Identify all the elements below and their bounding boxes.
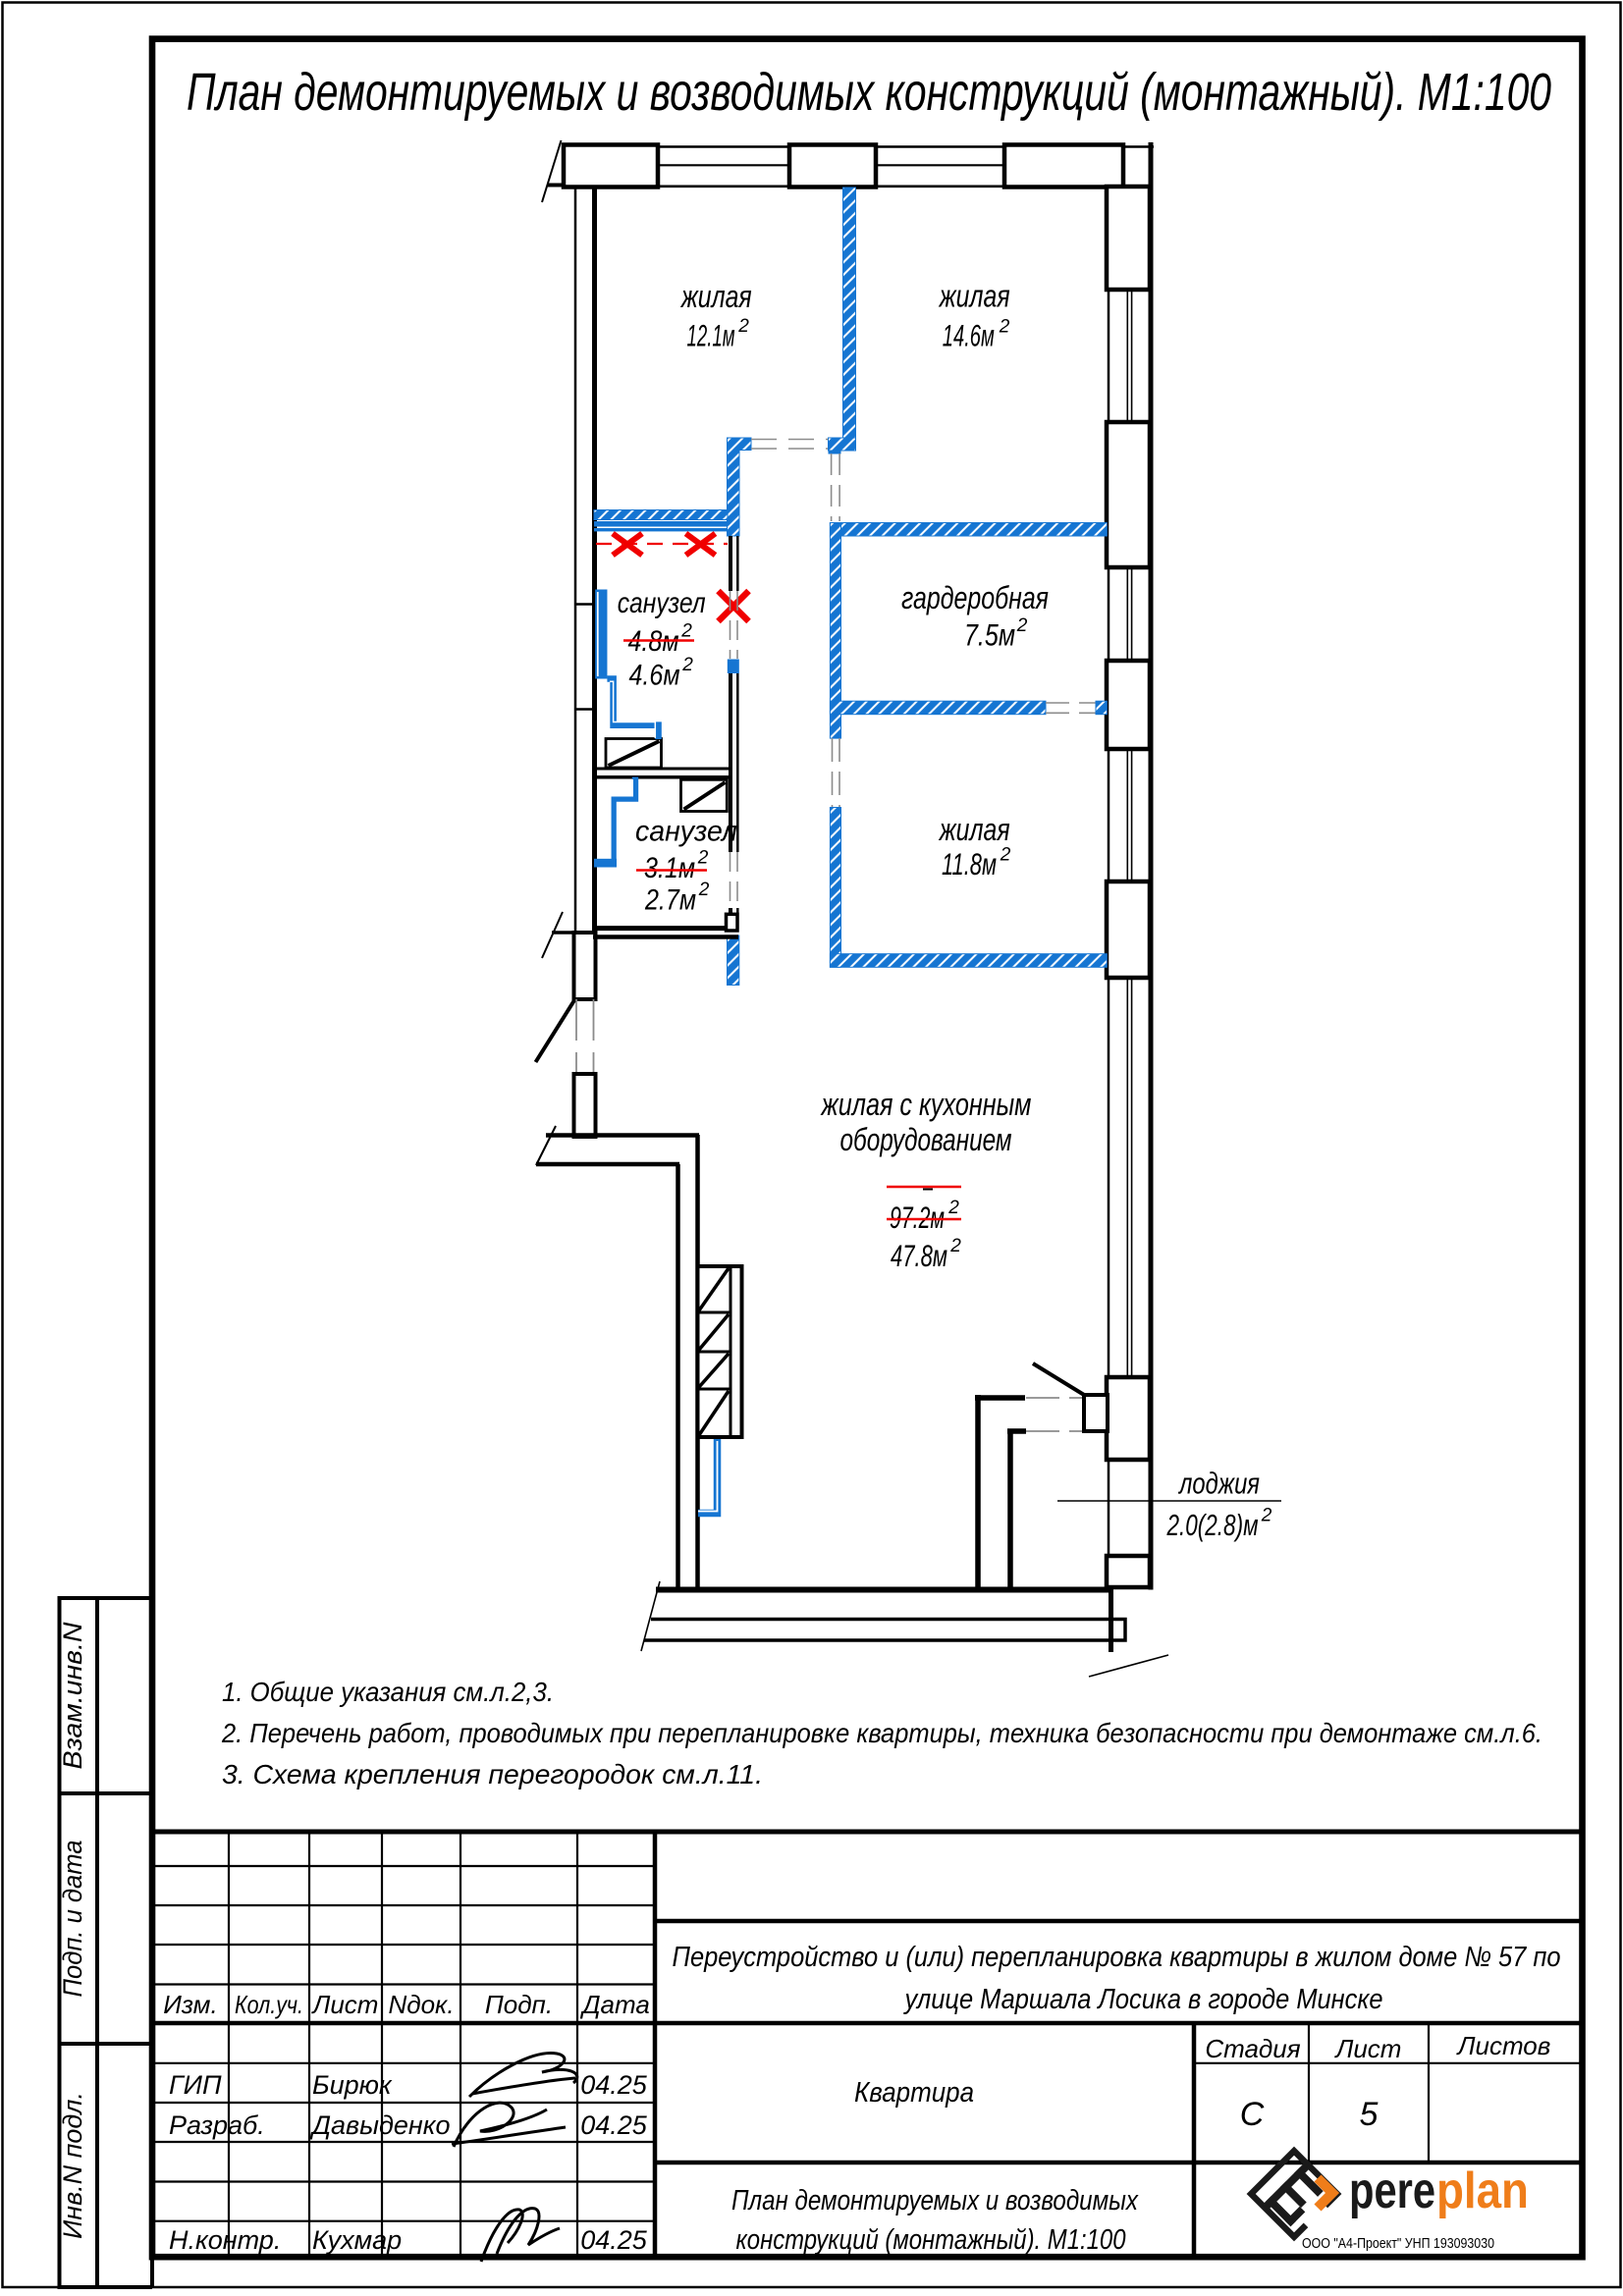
svg-text:жилая: жилая bbox=[679, 279, 752, 314]
svg-text:2: 2 bbox=[999, 317, 1010, 338]
svg-text:улице Маршала Лосика в городе: улице Маршала Лосика в городе Минске bbox=[903, 1984, 1383, 2015]
svg-text:Квартира: Квартира bbox=[854, 2077, 974, 2109]
svg-text:План демонтируемых и возводимы: План демонтируемых и возводимых bbox=[731, 2185, 1139, 2216]
svg-text:Бирюк: Бирюк bbox=[312, 2070, 393, 2100]
svg-text:2: 2 bbox=[1016, 615, 1028, 636]
svg-text:3. Схема крепления перегородо: 3. Схема крепления перегородок см.л.11. bbox=[222, 1759, 763, 1789]
svg-text:Дата: Дата bbox=[579, 1990, 650, 2019]
svg-text:санузел: санузел bbox=[618, 587, 706, 619]
svg-text:санузел: санузел bbox=[635, 816, 737, 848]
svg-text:гардеробная: гардеробная bbox=[901, 580, 1049, 615]
svg-text:лоджия: лоджия bbox=[1177, 1467, 1260, 1501]
svg-text:pere: pere bbox=[1349, 2163, 1435, 2219]
svg-text:2: 2 bbox=[737, 316, 749, 337]
svg-text:Давыденко: Давыденко bbox=[309, 2110, 451, 2140]
svg-text:2. Перечень работ, проводимых: 2. Перечень работ, проводимых при перепл… bbox=[221, 1718, 1542, 1748]
svg-text:Подп.: Подп. bbox=[485, 1990, 553, 2019]
svg-text:1. Общие указания см.л.2,3.: 1. Общие указания см.л.2,3. bbox=[222, 1677, 554, 1707]
svg-text:04.25: 04.25 bbox=[580, 2225, 648, 2255]
svg-text:2: 2 bbox=[698, 880, 710, 900]
svg-text:жилая: жилая bbox=[938, 812, 1010, 847]
svg-text:Подп. и дата: Подп. и дата bbox=[58, 1841, 87, 1998]
svg-text:2: 2 bbox=[681, 655, 693, 675]
svg-text:2: 2 bbox=[1000, 845, 1011, 866]
svg-text:Взам.инв.N: Взам.инв.N bbox=[58, 1622, 87, 1770]
svg-text:47.8м: 47.8м bbox=[891, 1238, 947, 1273]
svg-text:7.5м: 7.5м bbox=[964, 617, 1015, 653]
svg-text:3.1м: 3.1м bbox=[644, 852, 695, 884]
svg-text:Nдок.: Nдок. bbox=[388, 1990, 454, 2019]
svg-text:Лист: Лист bbox=[311, 1990, 379, 2019]
svg-text:12.1м: 12.1м bbox=[687, 318, 735, 353]
svg-text:97.2м: 97.2м bbox=[890, 1200, 945, 1235]
svg-text:оборудованием: оборудованием bbox=[840, 1122, 1012, 1157]
svg-text:Разраб.: Разраб. bbox=[169, 2110, 265, 2140]
svg-text:2.0(2.8)м: 2.0(2.8)м bbox=[1166, 1508, 1259, 1542]
svg-text:2: 2 bbox=[1261, 1506, 1272, 1526]
svg-text:2: 2 bbox=[697, 848, 709, 869]
svg-text:План демонтируемых и возводимы: План демонтируемых и возводимых конструк… bbox=[187, 63, 1551, 122]
svg-text:4.6м: 4.6м bbox=[629, 660, 680, 692]
svg-text:5: 5 bbox=[1360, 2096, 1379, 2133]
svg-text:жилая: жилая bbox=[938, 279, 1010, 314]
svg-text:2: 2 bbox=[680, 621, 692, 642]
svg-text:Лист: Лист bbox=[1334, 2034, 1402, 2063]
svg-text:Переустройство и (или) переп: Переустройство и (или) перепланировка кв… bbox=[673, 1942, 1561, 1973]
svg-text:2: 2 bbox=[949, 1236, 961, 1256]
svg-text:Листов: Листов bbox=[1456, 2031, 1551, 2060]
svg-text:жилая с кухонным: жилая с кухонным bbox=[820, 1087, 1032, 1122]
svg-text:ГИП: ГИП bbox=[169, 2070, 222, 2100]
svg-text:2.7м: 2.7м bbox=[644, 884, 696, 917]
svg-text:конструкций (монтажный). М1:10: конструкций (монтажный). М1:100 bbox=[736, 2224, 1126, 2256]
svg-text:ООО "А4-Проект" УНП 19309303: ООО "А4-Проект" УНП 193093030 bbox=[1302, 2236, 1494, 2252]
svg-text:Инв.N подл.: Инв.N подл. bbox=[58, 2092, 87, 2239]
svg-text:С: С bbox=[1240, 2096, 1265, 2133]
svg-text:plan: plan bbox=[1436, 2163, 1529, 2219]
svg-text:Н.контр.: Н.контр. bbox=[169, 2225, 281, 2255]
svg-text:04.25: 04.25 bbox=[580, 2110, 648, 2140]
svg-text:2: 2 bbox=[947, 1198, 959, 1218]
svg-text:11.8м: 11.8м bbox=[942, 846, 997, 881]
svg-text:14.6м: 14.6м bbox=[943, 317, 995, 352]
svg-text:Кухмар: Кухмар bbox=[312, 2225, 402, 2255]
svg-text:Стадия: Стадия bbox=[1205, 2034, 1300, 2063]
svg-text:Кол.уч.: Кол.уч. bbox=[235, 1990, 303, 2019]
svg-text:04.25: 04.25 bbox=[580, 2070, 648, 2100]
svg-text:Изм.: Изм. bbox=[163, 1990, 217, 2019]
